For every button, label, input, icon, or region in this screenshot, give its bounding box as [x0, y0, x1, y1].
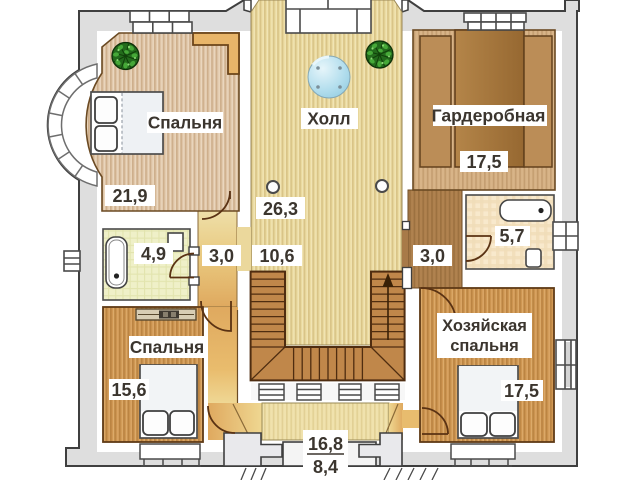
svg-text:4,9: 4,9 — [141, 244, 166, 264]
svg-text:17,5: 17,5 — [466, 152, 501, 172]
svg-text:26,3: 26,3 — [263, 199, 298, 219]
svg-text:8,4: 8,4 — [313, 457, 338, 477]
svg-text:21,9: 21,9 — [112, 186, 147, 206]
svg-text:10,6: 10,6 — [259, 246, 294, 266]
svg-text:Хозяйская: Хозяйская — [442, 317, 527, 335]
svg-text:16,8: 16,8 — [308, 434, 343, 454]
svg-text:3,0: 3,0 — [420, 246, 445, 266]
svg-text:Спальня: Спальня — [148, 113, 222, 133]
svg-text:15,6: 15,6 — [111, 380, 146, 400]
svg-text:спальня: спальня — [450, 337, 519, 355]
svg-text:Спальня: Спальня — [130, 337, 204, 357]
svg-text:5,7: 5,7 — [499, 226, 524, 246]
svg-text:Гардеробная: Гардеробная — [432, 106, 546, 126]
svg-text:Холл: Холл — [307, 109, 350, 129]
svg-text:3,0: 3,0 — [209, 246, 234, 266]
svg-text:17,5: 17,5 — [504, 381, 539, 401]
